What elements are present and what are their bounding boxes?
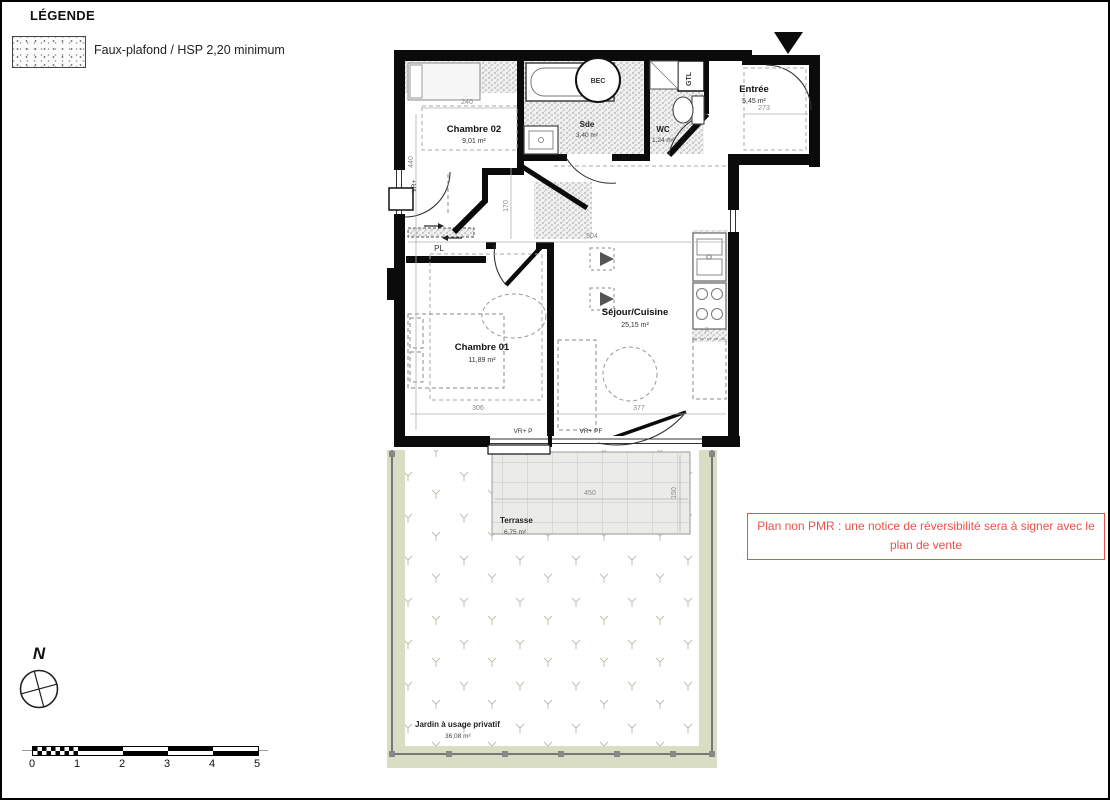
dim-150: 150	[671, 487, 678, 499]
entree-area: 5,45 m²	[742, 98, 766, 105]
floor-plan-drawing: Chambre 02 9,01 m² Sde 3,40 m² WC 1,24 m…	[2, 2, 1110, 800]
scale-bar	[32, 746, 259, 756]
gtl-label: GTL	[686, 71, 693, 86]
wc-name: WC	[656, 125, 670, 134]
vr-p-label: VR+ P	[514, 428, 533, 435]
north-label: N	[33, 644, 46, 663]
chambre02-area: 9,01 m²	[462, 138, 486, 145]
bec-label: BEC	[591, 78, 606, 85]
ceiling-circle	[482, 294, 546, 338]
dim-273: 273	[758, 105, 770, 112]
sejour-name: Séjour/Cuisine	[602, 307, 669, 318]
toilet-tank	[692, 96, 704, 124]
sde-name: Sde	[580, 120, 595, 129]
scale-tick-5: 5	[247, 758, 267, 770]
terrasse-name: Terrasse	[500, 516, 533, 525]
scale-tick-3: 3	[157, 758, 177, 770]
toilet-bowl	[673, 97, 693, 123]
jardin-name: Jardin à usage privatif	[415, 720, 500, 729]
non-pmr-note: Plan non PMR : une notice de réversibili…	[747, 513, 1105, 560]
angled-walls	[454, 114, 707, 443]
note-line-1: Plan non PMR : une notice de réversibili…	[748, 517, 1104, 536]
chambre01-name: Chambre 01	[455, 342, 510, 353]
sde-door-arc	[567, 159, 616, 183]
entree-name: Entrée	[739, 84, 769, 95]
terrasse-area: 6,75 m²	[504, 529, 527, 536]
window-box-left	[389, 188, 413, 210]
fridge-unit	[693, 339, 726, 399]
sde-area: 3,40 m²	[576, 132, 599, 139]
sofa	[558, 340, 596, 430]
chambre02-name: Chambre 02	[447, 124, 501, 135]
vr-pf-label: VR+ PF	[580, 428, 603, 435]
dim-440: 440	[408, 156, 415, 168]
dim-170: 170	[503, 200, 510, 212]
scale-tick-0: 0	[22, 758, 42, 770]
entree-door-arc	[766, 65, 811, 110]
chambre01-area: 11,89 m²	[468, 357, 496, 364]
fridge-label: R	[705, 327, 710, 334]
dim-450: 450	[584, 490, 596, 497]
scale-tick-1: 1	[67, 758, 87, 770]
round-table	[603, 347, 657, 401]
vr-label: VR+	[411, 179, 418, 192]
scale-tick-4: 4	[202, 758, 222, 770]
pl-label: PL	[434, 244, 444, 253]
chambre01-door-arc	[494, 245, 506, 285]
jardin-area-label: 36,08 m²	[445, 733, 471, 740]
dim-377: 377	[633, 405, 645, 412]
dim-240: 240	[461, 99, 473, 106]
floor-plan-page: LÉGENDE Faux-plafond / HSP 2,20 minimum	[0, 0, 1110, 800]
kitchen-sink	[693, 233, 726, 281]
dim-306: 306	[472, 405, 484, 412]
note-line-2: plan de vente	[748, 536, 1104, 555]
sejour-area: 25,15 m²	[621, 322, 649, 329]
dim-504: 504	[586, 233, 598, 240]
scale-tick-2: 2	[112, 758, 132, 770]
entrance-marker-triangle	[774, 32, 803, 54]
wc-area: 1,24 m²	[652, 137, 675, 144]
north-compass: N	[12, 639, 92, 719]
